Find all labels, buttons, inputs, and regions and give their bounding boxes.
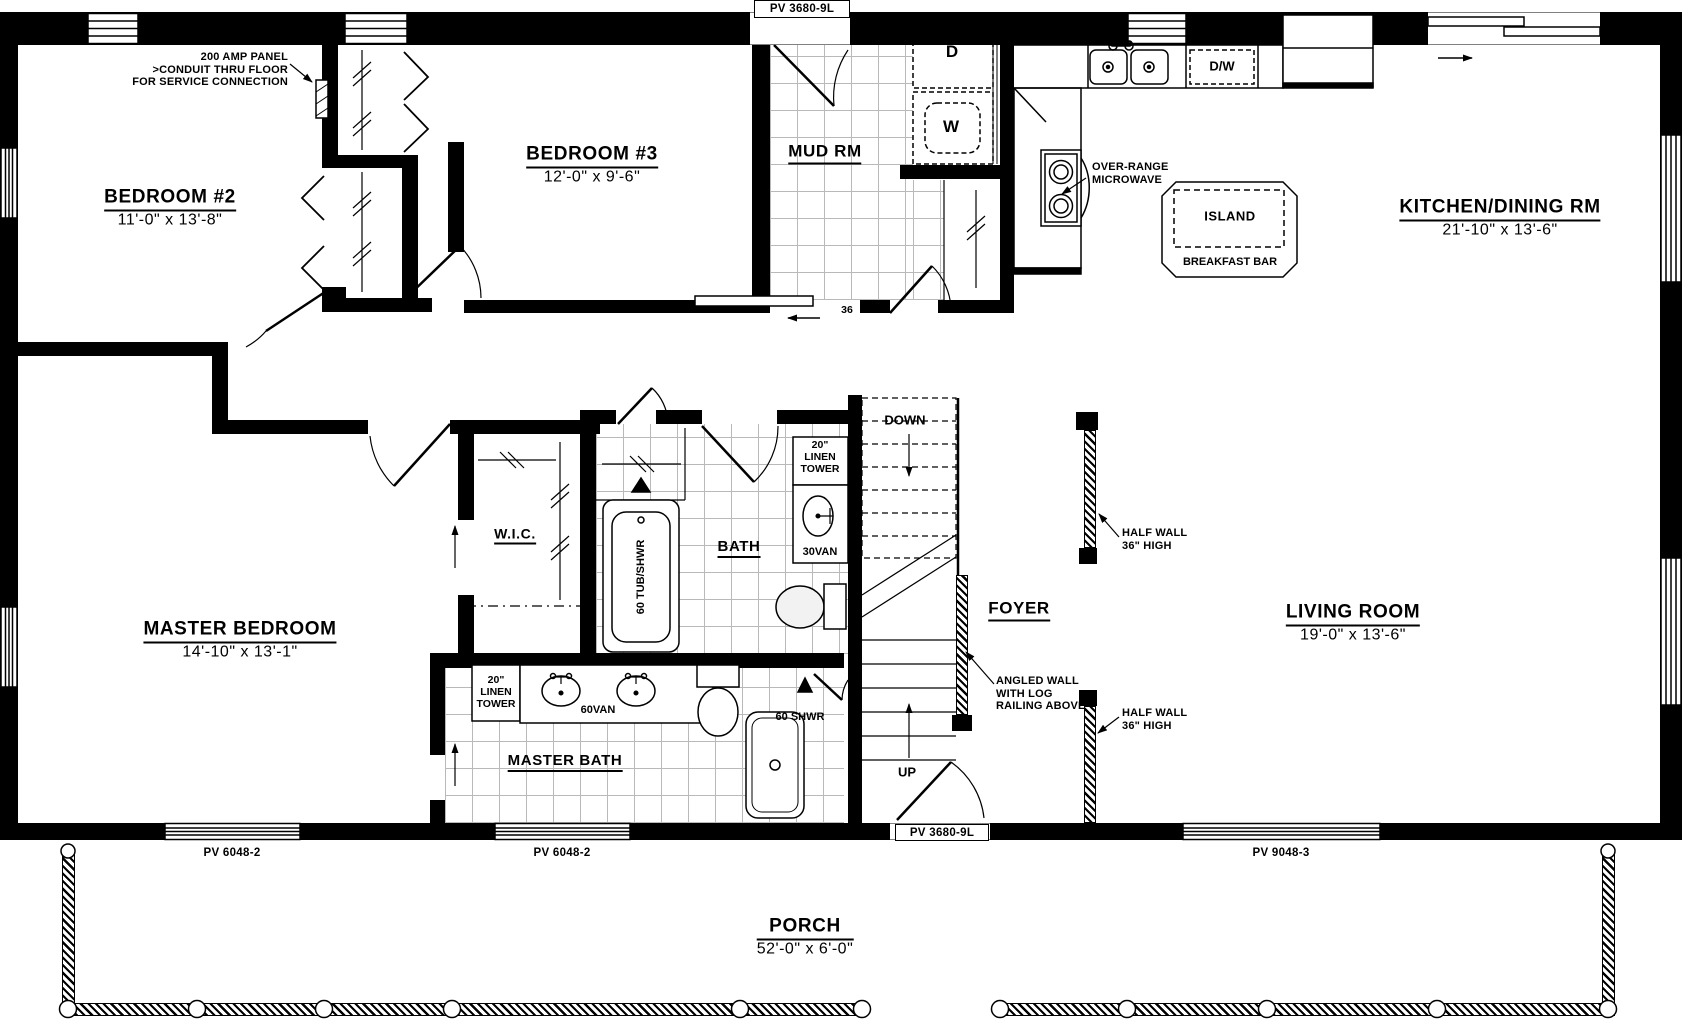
- room-master-bedroom-name: MASTER BEDROOM: [143, 619, 336, 644]
- window-tag-pv6048-left: PV 6048-2: [203, 847, 260, 859]
- floor-plan: PV 3680-9L PV 3680-9L PV 6048-2 PV 6048-…: [0, 0, 1682, 1020]
- vanity60-label: 60VAN: [581, 704, 616, 716]
- room-foyer-name: FOYER: [988, 599, 1050, 622]
- half-wall-upper-note: HALF WALL 36" HIGH: [1122, 527, 1187, 552]
- linen-tower-master-label: 20" LINEN TOWER: [477, 674, 516, 710]
- stairs-down-label: DOWN: [884, 413, 925, 428]
- room-bedroom2-dims: 11'-0" x 13'-8": [104, 212, 236, 230]
- room-kitchen: KITCHEN/DINING RM 21'-10" x 13'-6": [1399, 197, 1600, 240]
- door-tag-front-label: PV 3680-9L: [910, 827, 974, 839]
- half-wall-lower-note: HALF WALL 36" HIGH: [1122, 707, 1187, 732]
- room-bedroom2-name: BEDROOM #2: [104, 187, 236, 212]
- room-wic: W.I.C.: [494, 526, 536, 545]
- vanity30-label: 30VAN: [803, 546, 838, 558]
- shower-label: 60 SHWR: [776, 711, 825, 723]
- stairs-up-label: UP: [898, 765, 916, 780]
- island-label: ISLAND: [1204, 209, 1255, 224]
- amp-panel-note: 200 AMP PANEL >CONDUIT THRU FLOOR FOR SE…: [128, 51, 288, 89]
- room-wic-name: W.I.C.: [494, 526, 536, 545]
- room-bedroom3-name: BEDROOM #3: [526, 144, 658, 169]
- room-bath: BATH: [718, 538, 761, 558]
- room-foyer: FOYER: [988, 599, 1050, 622]
- room-porch: PORCH 52'-0" x 6'-0": [757, 916, 854, 959]
- door-tag-top: PV 3680-9L: [754, 0, 850, 18]
- room-bath-name: BATH: [718, 538, 761, 558]
- linen-tower-bath-label: 20" LINEN TOWER: [801, 439, 840, 475]
- room-bedroom2: BEDROOM #2 11'-0" x 13'-8": [104, 187, 236, 230]
- room-bedroom3: BEDROOM #3 12'-0" x 9'-6": [526, 144, 658, 187]
- washer-label: W: [943, 117, 959, 137]
- room-master-bedroom: MASTER BEDROOM 14'-10" x 13'-1": [143, 619, 336, 662]
- window-tag-pv9048: PV 9048-3: [1252, 847, 1309, 859]
- room-master-bedroom-dims: 14'-10" x 13'-1": [143, 644, 336, 662]
- room-living-name: LIVING ROOM: [1286, 602, 1420, 627]
- dryer-label: D: [946, 42, 958, 62]
- room-porch-dims: 52'-0" x 6'-0": [757, 941, 854, 959]
- tub-label: 60 TUB/SHWR: [635, 540, 647, 615]
- dishwasher-label: D/W: [1209, 59, 1234, 74]
- room-bedroom3-dims: 12'-0" x 9'-6": [526, 169, 658, 187]
- room-kitchen-name: KITCHEN/DINING RM: [1399, 197, 1600, 222]
- room-living: LIVING ROOM 19'-0" x 13'-6": [1286, 602, 1420, 645]
- room-mudroom-name: MUD RM: [788, 142, 861, 165]
- room-mudroom: MUD RM: [788, 142, 861, 165]
- door-tag-front: PV 3680-9L: [895, 824, 989, 841]
- room-master-bath-name: MASTER BATH: [508, 752, 623, 772]
- door-tag-top-label: PV 3680-9L: [770, 3, 834, 15]
- breakfast-bar-label: BREAKFAST BAR: [1183, 256, 1277, 268]
- angled-wall-note: ANGLED WALL WITH LOG RAILING ABOVE: [996, 675, 1086, 713]
- window-tag-pv6048-mid: PV 6048-2: [533, 847, 590, 859]
- door-width-label: 36: [841, 304, 853, 316]
- room-living-dims: 19'-0" x 13'-6": [1286, 627, 1420, 645]
- microwave-note: OVER-RANGE MICROWAVE: [1092, 161, 1169, 186]
- room-porch-name: PORCH: [757, 916, 854, 941]
- room-kitchen-dims: 21'-10" x 13'-6": [1399, 222, 1600, 240]
- room-master-bath: MASTER BATH: [508, 752, 623, 772]
